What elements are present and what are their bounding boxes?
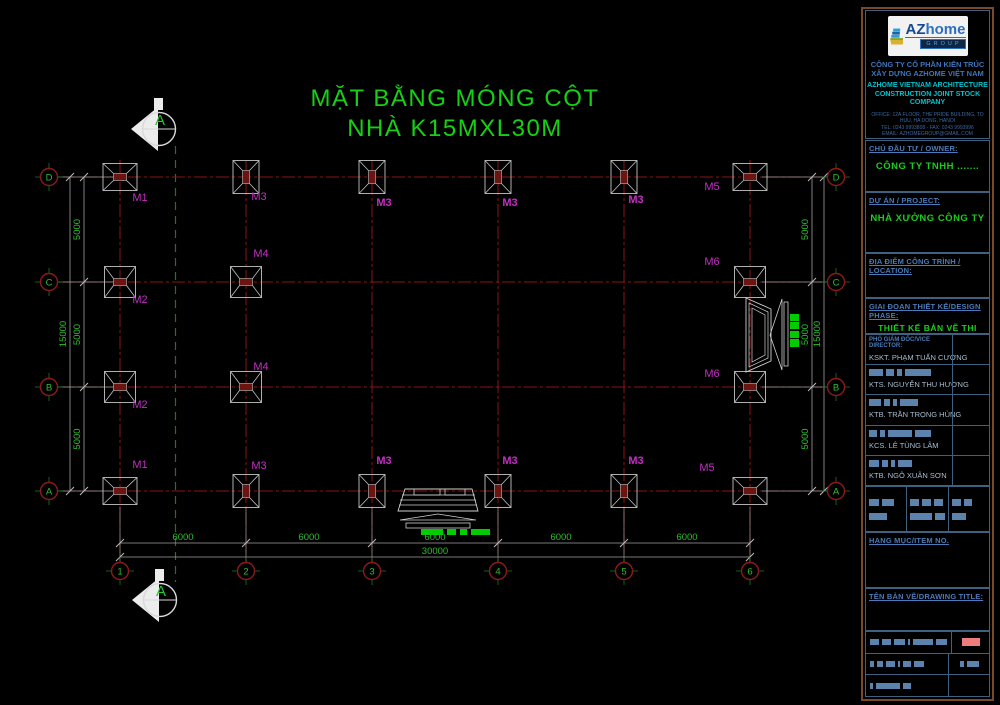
footing-diagonal: [105, 286, 114, 298]
column-type-label: M5: [704, 181, 719, 193]
footing-diagonal: [233, 498, 243, 508]
signature-space: [952, 426, 989, 455]
section-marker-top-flag: [154, 98, 163, 110]
footing-diagonal: [231, 372, 240, 384]
title-block: AZhome GROUP CÔNG TY CỔ PHẦN KIẾN TRÚC X…: [861, 7, 994, 701]
footing-diagonal: [733, 164, 744, 174]
footing-diagonal: [735, 391, 744, 403]
footing-column-pad: [240, 279, 253, 286]
column-type-label: M3: [251, 191, 266, 203]
page-title-line2: NHÀ K15MXL30M: [285, 114, 625, 144]
entrance-detail-bottom: [414, 489, 440, 495]
footing-diagonal: [757, 164, 768, 174]
signatory-row: KCS. LÊ TÙNG LÂM: [866, 426, 989, 456]
footing-diagonal: [253, 391, 262, 403]
footing-diagonal: [485, 161, 495, 171]
footing-diagonal: [103, 495, 114, 505]
footing-diagonal: [735, 286, 744, 298]
entrance-detail-bottom: [406, 523, 470, 528]
location-label: ĐỊA ĐIỂM CÔNG TRÌNH / LOCATION:: [866, 254, 989, 275]
footing-diagonal: [105, 391, 114, 403]
footing-diagonal: [231, 267, 240, 279]
entrance-green-mark: [471, 529, 490, 535]
logo-group: GROUP: [920, 39, 965, 49]
signatory-row: KTB. TRẦN TRỌNG HÙNG: [866, 395, 989, 425]
footing-diagonal: [485, 475, 495, 485]
entrance-green-mark: [460, 529, 467, 535]
signatory-name: KCS. LÊ TÙNG LÂM: [869, 441, 949, 450]
footing-diagonal: [611, 184, 621, 194]
footing-diagonal: [127, 267, 136, 279]
footing-diagonal: [733, 495, 744, 505]
footing-diagonal: [233, 161, 243, 171]
company-header: AZhome GROUP CÔNG TY CỔ PHẦN KIẾN TRÚC X…: [865, 10, 990, 139]
grid-bubble-label: A: [833, 487, 840, 498]
entrance-detail-right: [784, 302, 788, 366]
footing-diagonal: [757, 372, 766, 384]
footing-diagonal: [250, 161, 260, 171]
footing-diagonal: [757, 267, 766, 279]
redacted-role-bars: [869, 460, 949, 467]
column-type-label: M1: [132, 192, 147, 204]
footing-column-pad: [369, 485, 376, 498]
drawing-title-section: TÊN BẢN VẼ/DRAWING TITLE:: [865, 588, 990, 631]
column-type-label: M3: [628, 455, 643, 467]
grid-bubble-label: 6: [747, 567, 752, 578]
signatory-role: PHÓ GIÁM ĐỐC/VICE DIRECTOR:: [869, 337, 949, 349]
grid-bubble-label: 4: [495, 567, 500, 578]
footing-diagonal: [502, 498, 512, 508]
footing-diagonal: [628, 161, 638, 171]
owner-section: CHỦ ĐẦU TƯ / OWNER: CÔNG TY TNHH .......: [865, 140, 990, 192]
signatory-cell: KCS. LÊ TÙNG LÂM: [866, 426, 952, 455]
footing-diagonal: [127, 164, 138, 174]
section-marker-bottom-label: A: [156, 583, 166, 600]
footing-diagonal: [502, 161, 512, 171]
entrance-green-mark: [421, 529, 443, 535]
footing-diagonal: [103, 164, 114, 174]
item-label: HẠNG MỤC/ITEM NO.: [866, 533, 989, 545]
footing-column-pad: [495, 485, 502, 498]
footing-diagonal: [485, 498, 495, 508]
footing-column-pad: [240, 384, 253, 391]
column-type-label: M1: [132, 459, 147, 471]
dimension-text: 5000: [72, 219, 83, 240]
signatory-row: PHÓ GIÁM ĐỐC/VICE DIRECTOR:KSKT. PHẠM TU…: [866, 335, 989, 365]
footing-column-pad: [744, 174, 757, 181]
footing-column-pad: [243, 171, 250, 184]
footing-diagonal: [628, 475, 638, 485]
footing-column-pad: [114, 279, 127, 286]
column-type-label: M3: [376, 197, 391, 209]
signatory-row: KTB. NGÔ XUÂN SƠN: [866, 456, 989, 485]
dimension-text: 6000: [298, 532, 319, 543]
footing-diagonal: [628, 498, 638, 508]
column-type-label: M3: [376, 455, 391, 467]
dimension-text: 5000: [72, 324, 83, 345]
footing-diagonal: [359, 475, 369, 485]
dimension-text: 5000: [800, 428, 811, 449]
footing-diagonal: [127, 181, 138, 191]
cad-sheet: 5000500050001500050005000500015000600060…: [0, 0, 1000, 705]
footing-column-pad: [114, 488, 127, 495]
column-type-label: M6: [704, 256, 719, 268]
bottom-table-row: [866, 675, 989, 696]
azhome-logo: AZhome GROUP: [888, 16, 968, 56]
signature-space: [952, 365, 989, 394]
column-type-label: M3: [628, 194, 643, 206]
redacted-role-bars: [869, 399, 949, 406]
footing-column-pad: [114, 384, 127, 391]
column-type-label: M3: [502, 455, 517, 467]
entrance-detail-bottom: [400, 514, 476, 520]
page-title: MẶT BẰNG MÓNG CỘT NHÀ K15MXL30M: [285, 84, 625, 144]
entrance-detail-bottom: [445, 489, 465, 495]
entrance-green-mark: [790, 339, 799, 347]
footing-diagonal: [233, 184, 243, 194]
footing-column-pad: [744, 279, 757, 286]
section-marker-bottom-flag: [155, 569, 164, 581]
dimension-text: 30000: [422, 546, 448, 557]
entrance-green-mark: [790, 314, 799, 321]
dimension-text: 5000: [800, 219, 811, 240]
grid-bubble-label: 3: [369, 567, 374, 578]
column-type-label: M5: [699, 462, 714, 474]
footing-diagonal: [105, 267, 114, 279]
bottom-table: [865, 631, 990, 697]
footing-diagonal: [250, 498, 260, 508]
footing-diagonal: [611, 475, 621, 485]
footing-diagonal: [376, 498, 386, 508]
footing-diagonal: [757, 181, 768, 191]
owner-value: CÔNG TY TNHH .......: [866, 161, 989, 172]
page-title-line1: MẶT BẰNG MÓNG CỘT: [285, 84, 625, 114]
phase-label: GIAI ĐOẠN THIẾT KẾ/DESIGN PHASE:: [866, 299, 989, 320]
signature-space: [952, 456, 989, 485]
signature-table: PHÓ GIÁM ĐỐC/VICE DIRECTOR:KSKT. PHẠM TU…: [865, 334, 990, 486]
footing-diagonal: [502, 184, 512, 194]
azhome-wordmark: AZhome GROUP: [905, 23, 965, 49]
signatory-cell: KTS. NGUYỄN THU HƯƠNG: [866, 365, 952, 394]
bottom-table-row: [866, 654, 989, 676]
footing-diagonal: [376, 161, 386, 171]
grid-bubble-label: B: [833, 383, 839, 394]
drawing-title-label: TÊN BẢN VẼ/DRAWING TITLE:: [866, 589, 989, 601]
footing-diagonal: [757, 478, 768, 488]
footing-diagonal: [253, 372, 262, 384]
footing-diagonal: [231, 286, 240, 298]
project-label: DỰ ÁN / PROJECT:: [866, 193, 989, 205]
signatory-name: KTB. NGÔ XUÂN SƠN: [869, 471, 949, 480]
footing-diagonal: [757, 495, 768, 505]
azhome-building-icon: [890, 23, 904, 50]
dimension-text: 6000: [172, 532, 193, 543]
footing-diagonal: [735, 267, 744, 279]
footing-diagonal: [359, 161, 369, 171]
footing-diagonal: [105, 372, 114, 384]
footing-diagonal: [611, 161, 621, 171]
footing-diagonal: [253, 286, 262, 298]
phase-section: GIAI ĐOẠN THIẾT KẾ/DESIGN PHASE: THIẾT K…: [865, 298, 990, 334]
grid-bubble-label: 1: [117, 567, 122, 578]
footing-diagonal: [735, 372, 744, 384]
revision-mark: [962, 638, 980, 646]
entrance-detail-right: [770, 299, 782, 370]
footing-diagonal: [231, 391, 240, 403]
dimension-text: 5000: [72, 428, 83, 449]
column-type-label: M4: [253, 361, 268, 373]
logo-home: home: [925, 21, 965, 38]
footing-diagonal: [376, 475, 386, 485]
footing-diagonal: [611, 498, 621, 508]
footing-diagonal: [127, 372, 136, 384]
footing-diagonal: [757, 286, 766, 298]
stamp-row: [865, 486, 990, 532]
column-type-label: M4: [253, 248, 268, 260]
logo-az: AZ: [905, 21, 925, 38]
footing-diagonal: [502, 475, 512, 485]
footing-diagonal: [485, 184, 495, 194]
footing-diagonal: [733, 181, 744, 191]
company-name-en: AZHOME VIETNAM ARCHITECTURE CONSTRUCTION…: [866, 82, 989, 108]
grid-bubble-label: 5: [621, 567, 626, 578]
footing-diagonal: [359, 498, 369, 508]
signature-space: [952, 335, 989, 364]
signature-space: [952, 395, 989, 424]
grid-bubble-label: B: [46, 383, 52, 394]
entrance-green-mark: [790, 322, 799, 329]
footing-diagonal: [757, 391, 766, 403]
footing-diagonal: [250, 475, 260, 485]
signatory-name: KTS. NGUYỄN THU HƯƠNG: [869, 380, 949, 389]
signatory-row: KTS. NGUYỄN THU HƯƠNG: [866, 365, 989, 395]
entrance-green-mark: [790, 331, 799, 338]
grid-bubble-label: C: [46, 278, 53, 289]
redacted-role-bars: [869, 369, 949, 376]
signatory-name: KTB. TRẦN TRỌNG HÙNG: [869, 410, 949, 419]
project-value: NHÀ XƯỞNG CÔNG TY: [866, 213, 989, 224]
company-name-vn: CÔNG TY CỔ PHẦN KIẾN TRÚC XÂY DỰNG AZHOM…: [866, 60, 989, 78]
company-contact: OFFICE: 12A FLOOR, THE PRIDE BUILDING, T…: [866, 112, 989, 140]
entrance-green-mark: [447, 529, 456, 535]
footing-column-pad: [495, 171, 502, 184]
column-type-label: M2: [132, 294, 147, 306]
column-type-label: M3: [502, 197, 517, 209]
signatory-cell: PHÓ GIÁM ĐỐC/VICE DIRECTOR:KSKT. PHẠM TU…: [866, 335, 952, 364]
footing-column-pad: [114, 174, 127, 181]
signatory-name: KSKT. PHẠM TUẤN CƯỜNG: [869, 353, 949, 362]
entrance-detail-right: [752, 308, 765, 362]
stamp-cell: [906, 487, 948, 531]
grid-bubble-label: D: [833, 173, 840, 184]
column-type-label: M6: [704, 368, 719, 380]
column-type-label: M3: [251, 460, 266, 472]
footing-diagonal: [733, 478, 744, 488]
redacted-role-bars: [869, 430, 949, 437]
dimension-text: 6000: [676, 532, 697, 543]
stamp-cell: [866, 487, 906, 531]
section-marker-top-label: A: [155, 112, 165, 129]
footing-diagonal: [103, 181, 114, 191]
bottom-table-row: [866, 632, 989, 654]
signatory-cell: KTB. TRẦN TRỌNG HÙNG: [866, 395, 952, 424]
phase-value: THIẾT KẾ BẢN VẼ THI CÔNG: [866, 323, 989, 334]
owner-label: CHỦ ĐẦU TƯ / OWNER:: [866, 141, 989, 153]
project-section: DỰ ÁN / PROJECT: NHÀ XƯỞNG CÔNG TY: [865, 192, 990, 253]
footing-column-pad: [243, 485, 250, 498]
footing-column-pad: [369, 171, 376, 184]
grid-bubble-label: D: [46, 173, 53, 184]
dimension-text: 6000: [550, 532, 571, 543]
item-section: HẠNG MỤC/ITEM NO.: [865, 532, 990, 588]
column-type-label: M2: [132, 399, 147, 411]
dimension-text: 15000: [812, 321, 823, 347]
grid-bubble-label: A: [46, 487, 53, 498]
footing-column-pad: [621, 171, 628, 184]
dimension-text: 5000: [800, 324, 811, 345]
grid-bubble-label: 2: [243, 567, 248, 578]
dimension-text: 15000: [58, 321, 69, 347]
location-section: ĐỊA ĐIỂM CÔNG TRÌNH / LOCATION:: [865, 253, 990, 298]
footing-diagonal: [376, 184, 386, 194]
footing-diagonal: [628, 184, 638, 194]
footing-diagonal: [233, 475, 243, 485]
grid-bubble-label: C: [833, 278, 840, 289]
footing-column-pad: [621, 485, 628, 498]
footing-diagonal: [127, 495, 138, 505]
signatory-cell: KTB. NGÔ XUÂN SƠN: [866, 456, 952, 485]
footing-column-pad: [744, 384, 757, 391]
footing-diagonal: [103, 478, 114, 488]
footing-diagonal: [127, 478, 138, 488]
stamp-cell: [948, 487, 989, 531]
footing-diagonal: [253, 267, 262, 279]
footing-diagonal: [359, 184, 369, 194]
footing-column-pad: [744, 488, 757, 495]
